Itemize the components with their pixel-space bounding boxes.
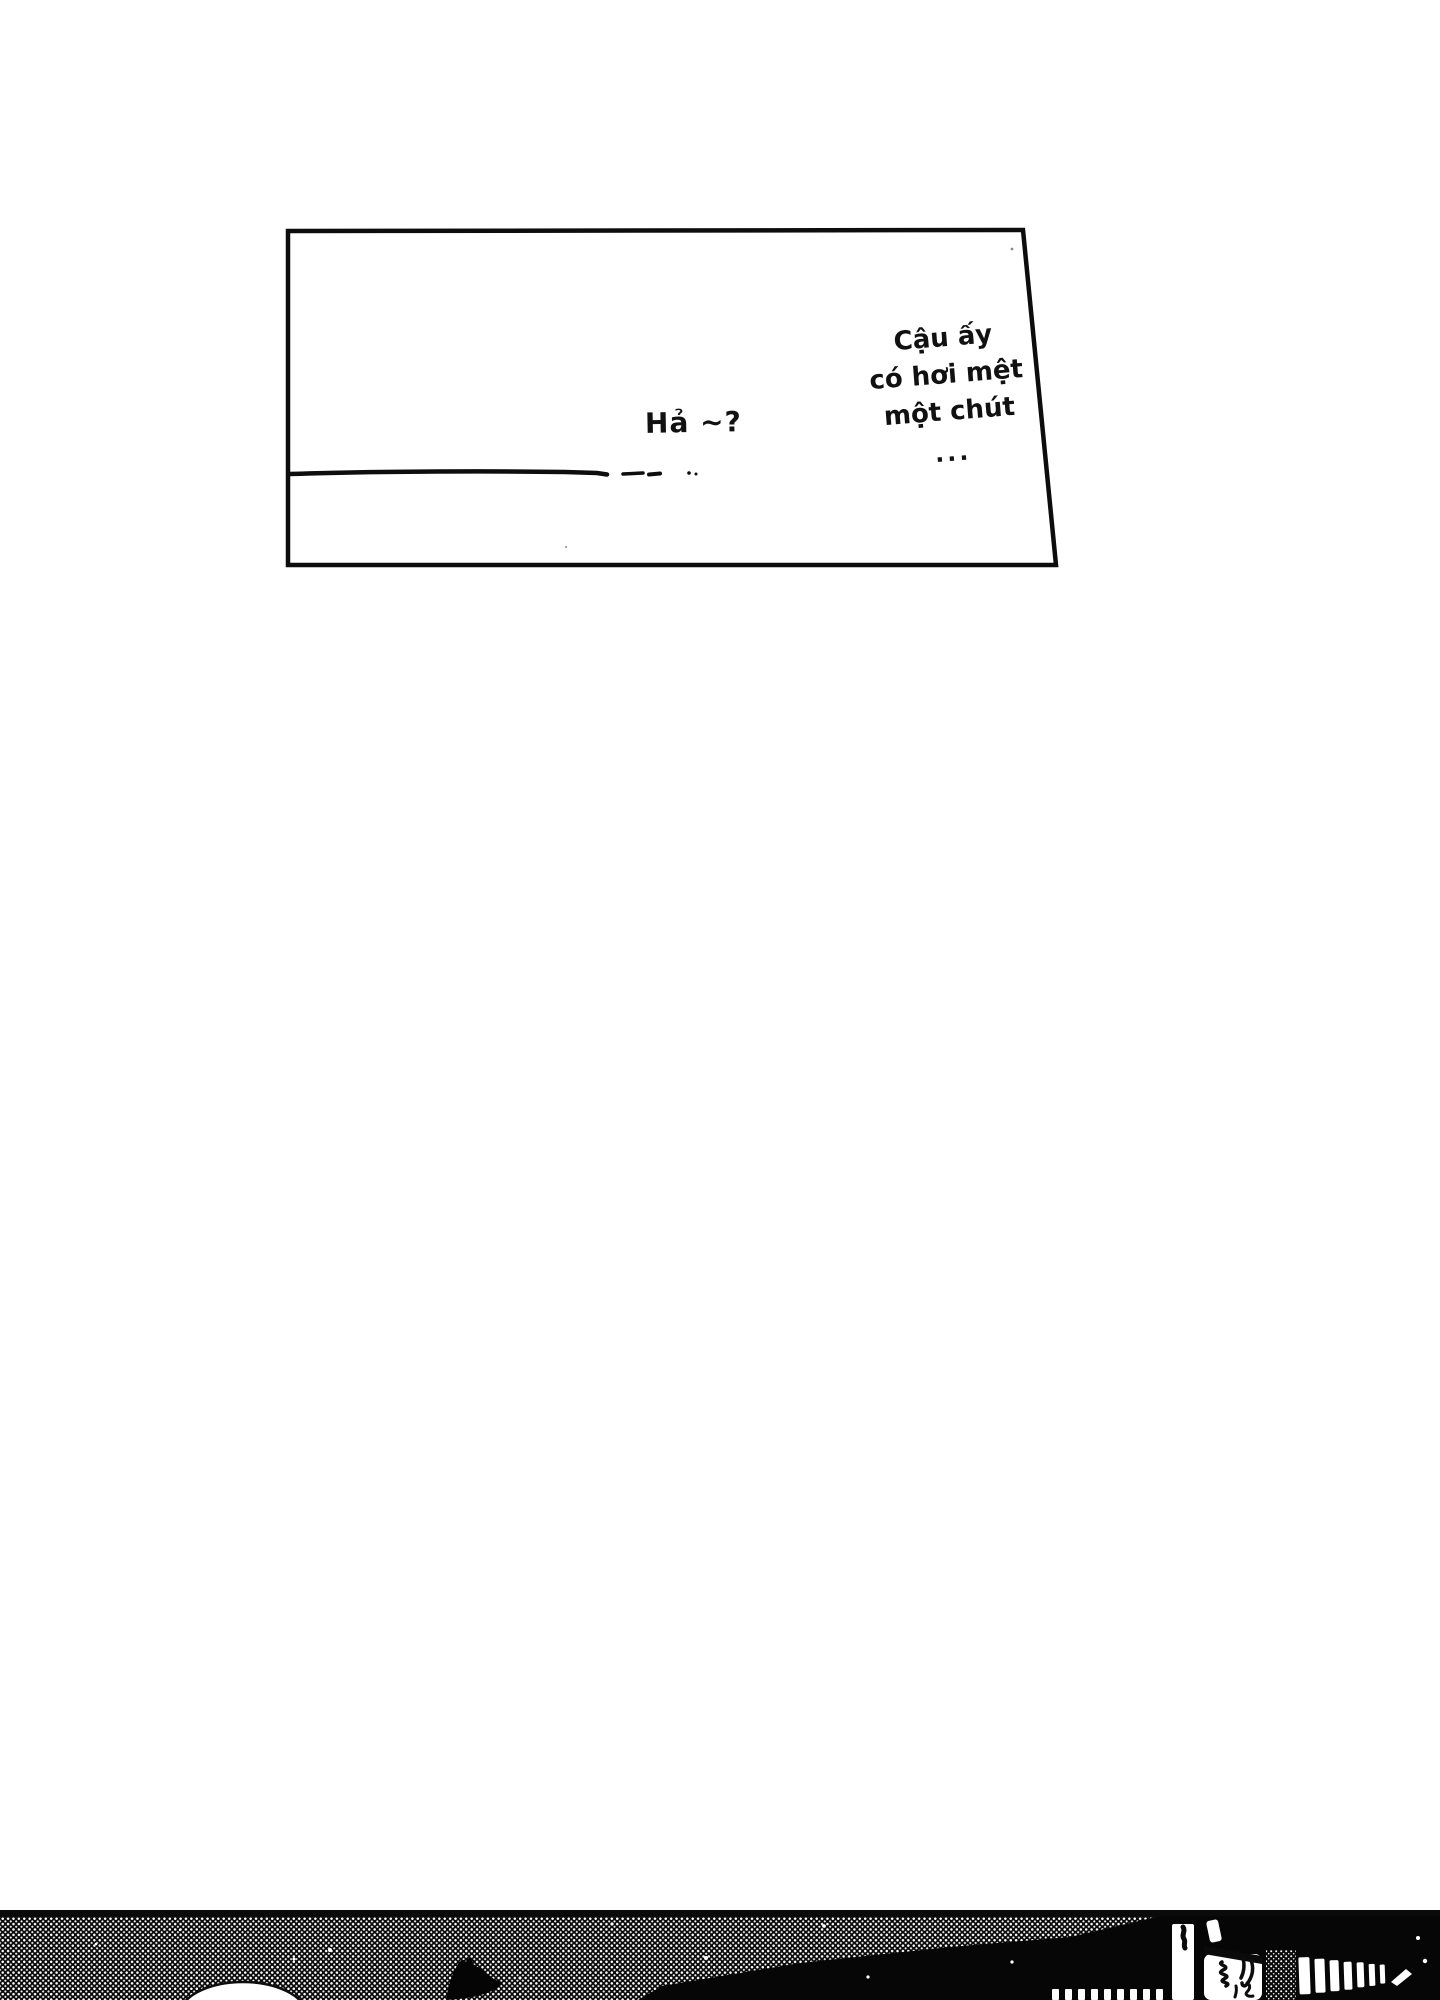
bottom-panel-border (0, 1910, 1440, 1917)
manga-page: Hả ~? Cậu ấycó hơi mệtmột chút... (0, 0, 1440, 2000)
speech-ha: Hả ~? (645, 405, 742, 440)
creature-silhouette (446, 1958, 501, 2000)
paper-speck (1011, 248, 1014, 251)
post-shadow-marks (1183, 1927, 1185, 1948)
bottom-panel-art (0, 1910, 1440, 2000)
paper-speck (565, 546, 567, 548)
table-edge-dash (623, 473, 643, 474)
ink-dot (687, 471, 691, 475)
small-picket-row (1052, 1989, 1163, 2000)
ink-dot (695, 473, 698, 476)
halftone-column (1266, 1950, 1296, 2000)
speech-tired-block: Cậu ấycó hơi mệtmột chút... (862, 313, 1035, 478)
table-edge-dash (649, 474, 660, 475)
speech-panel-art (0, 0, 1440, 620)
snow-mound (179, 1982, 307, 2000)
